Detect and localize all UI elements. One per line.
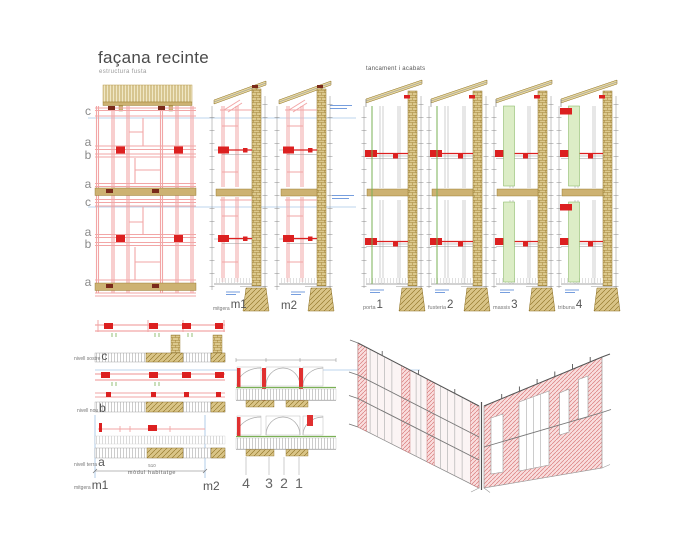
section-tribuna [557,80,621,311]
section-m1 [210,81,270,311]
sheet-subtitle: estructura fusta [99,69,147,75]
label-fusteria: fusteria 2 [428,300,453,312]
callout-4: 4 [240,476,252,490]
section-m2 [275,81,335,311]
timber-frame-grid [95,106,196,296]
plan-details-mid [236,358,336,475]
label-tribuna: tribuna 4 [558,300,582,312]
label-nivell-terra: nivell terra a [74,456,105,468]
level-label-c1: c [81,105,95,117]
callout-3: 3 [263,476,275,490]
section-fusteria [427,80,491,311]
level-label-a4: a [81,276,95,288]
right-group-title: tancament i acabats [366,66,425,72]
label-nivell-nou: nivell nou b [77,402,106,414]
dimension-510: 510 [138,464,166,469]
section-finish-type [362,80,426,311]
label-section-m1: mitgera m1 [213,300,247,312]
level-label-a1: a [81,136,95,148]
callout-1: 1 [293,476,305,490]
callout-2: 2 [278,476,290,490]
label-section-m2: m2 [281,301,297,313]
level-label-b2: b [81,238,95,250]
sheet-title: façana recinte [98,49,209,66]
drawing-layer [0,0,700,544]
section-massis [492,80,556,311]
axonometric-view [349,340,611,493]
label-massis: massis 3 [493,300,518,312]
label-nivell-sostre: nivell sostre c [74,350,107,362]
dimension-modul-habitatge: mòdul habitatge [117,471,187,477]
level-label-a2: a [81,178,95,190]
facade-elevation [95,85,196,296]
level-label-b1: b [81,149,95,161]
level-label-c2: c [81,196,95,208]
label-mitgera-m1-bottom: mitgera m1 [74,479,108,491]
label-porta: porta 1 [363,300,383,312]
drawing-sheet: façana recinte estructura fusta c a b a … [0,0,700,544]
label-m2-bottom: m2 [203,480,220,492]
